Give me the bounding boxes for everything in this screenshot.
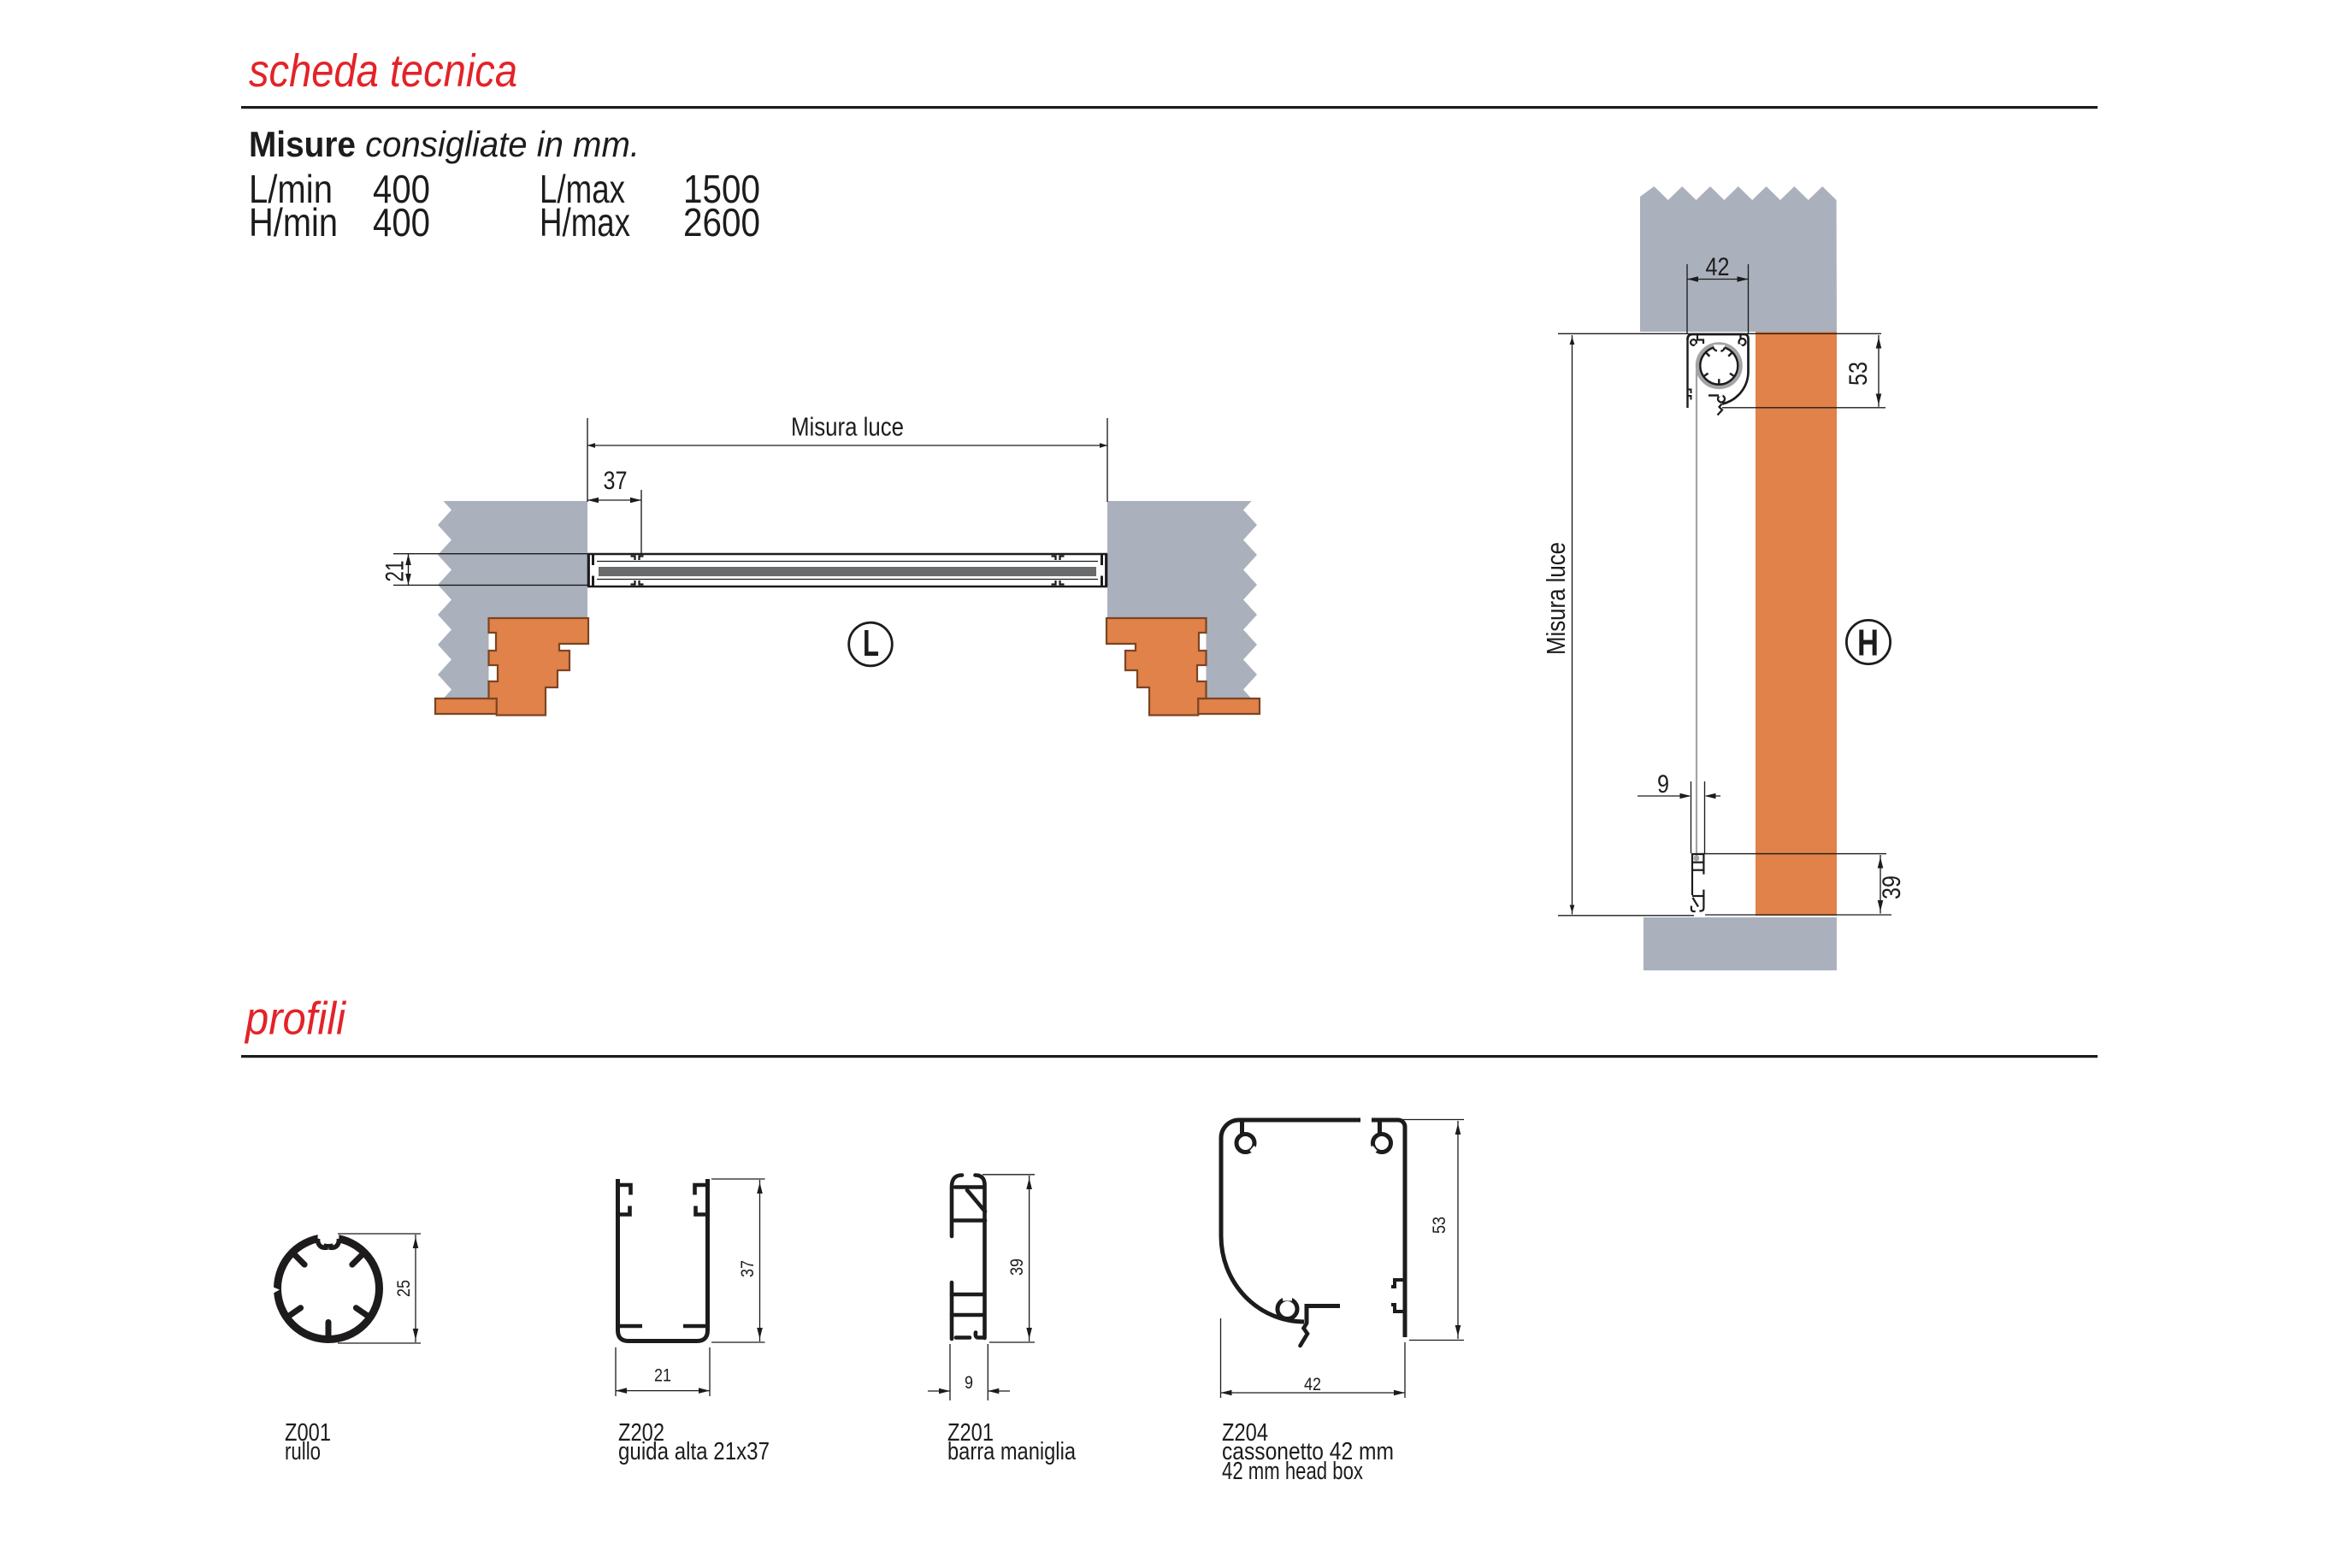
svg-text:21: 21 <box>381 561 410 582</box>
svg-text:400: 400 <box>373 200 430 245</box>
svg-text:H: H <box>1857 622 1879 664</box>
svg-text:39: 39 <box>1006 1259 1027 1276</box>
svg-text:21: 21 <box>654 1365 671 1386</box>
svg-text:53: 53 <box>1844 362 1873 386</box>
svg-text:37: 37 <box>737 1260 758 1277</box>
svg-text:Misura luce: Misura luce <box>1541 542 1571 655</box>
svg-text:Misure consigliate in mm.: Misure consigliate in mm. <box>249 124 640 164</box>
svg-text:H/min: H/min <box>249 200 338 245</box>
svg-text:9: 9 <box>1657 770 1669 799</box>
svg-text:guida alta 21x37: guida alta 21x37 <box>618 1438 770 1465</box>
svg-text:L: L <box>863 622 879 664</box>
svg-text:42 mm head box: 42 mm head box <box>1222 1458 1363 1485</box>
svg-text:rullo: rullo <box>285 1438 321 1465</box>
svg-text:25: 25 <box>393 1280 414 1297</box>
svg-text:Misura luce: Misura luce <box>791 412 904 442</box>
svg-text:39: 39 <box>1878 875 1906 899</box>
svg-text:53: 53 <box>1429 1217 1449 1234</box>
svg-text:profili: profili <box>244 993 347 1045</box>
svg-text:9: 9 <box>965 1372 973 1393</box>
svg-text:37: 37 <box>604 467 628 495</box>
svg-text:2600: 2600 <box>683 200 760 245</box>
svg-text:42: 42 <box>1304 1374 1321 1394</box>
svg-text:barra maniglia: barra maniglia <box>947 1438 1077 1465</box>
svg-text:H/max: H/max <box>540 200 630 245</box>
svg-text:scheda tecnica: scheda tecnica <box>249 45 517 97</box>
svg-text:42: 42 <box>1706 253 1730 281</box>
